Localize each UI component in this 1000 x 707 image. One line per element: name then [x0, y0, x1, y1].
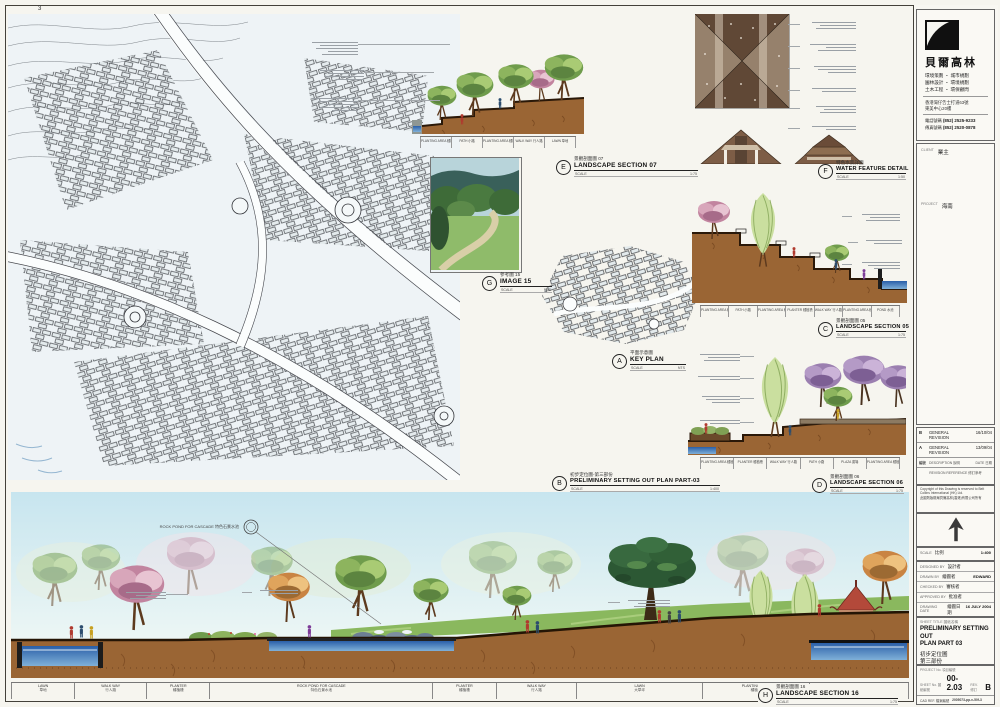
callout-image-15: G 參考圖 15 IMAGE 15 SCALENTS	[482, 272, 552, 293]
dim-label: PLANTING AREA 種植區	[842, 306, 870, 317]
scale-cn: 比例	[935, 550, 944, 556]
annotation-block	[800, 42, 856, 51]
section-07-drawing	[412, 22, 584, 134]
client-value: 業主	[938, 148, 949, 156]
annotation-block	[306, 68, 364, 80]
revision-footer: REVISION REFERENCE 修訂參考	[917, 468, 994, 475]
dim-segment: ROCK POND FOR CASCADE特色石景水池	[209, 683, 432, 699]
plaza-wall	[800, 419, 906, 424]
dim-label: PLANTING AREA 種植區	[700, 458, 733, 469]
company-name: 貝爾高林	[917, 54, 994, 70]
callout-section-07: E 景觀剖面圖 07 LANDSCAPE SECTION 07 SCALE1:7…	[556, 156, 698, 177]
section-06-dim-strip: PLANTING AREA 種植區 PLANTER 種植槽 WALK WAY 行…	[700, 457, 900, 469]
scale-value: 1:75	[898, 333, 905, 337]
scale-label: SCALE	[501, 288, 513, 292]
dim-label: PLANTER 種植槽	[785, 306, 813, 317]
page-marker: 3	[38, 6, 41, 12]
annotation-block	[852, 260, 900, 269]
key-plan-roundabout	[563, 297, 577, 311]
sheet-title-label: SHEET TITLE 圖紙名稱	[917, 618, 994, 626]
tel-value: (852) 2525-9233	[943, 118, 975, 123]
person	[499, 98, 502, 108]
scale-label: SCALE	[575, 172, 587, 176]
callout-letter: F	[818, 164, 833, 179]
callout-section-16: H 景觀剖面圖 16 LANDSCAPE SECTION 16 SCALE1:7…	[758, 684, 898, 705]
north-arrow-icon	[941, 516, 971, 544]
annotation-block	[800, 86, 856, 92]
scale-value: NTS	[678, 366, 685, 370]
sheet-title-panel: SHEET TITLE 圖紙名稱 PRELIMINARY SETTING OUT…	[916, 617, 995, 665]
dim-segment: PLANTER種植槽	[146, 683, 209, 699]
north-arrow-panel	[916, 513, 995, 547]
company-panel: 貝爾高林 環境策劃 ・ 城市規劃 園林設計 ・ 環境規劃 土木工程 ・ 環保顧問…	[916, 9, 995, 141]
callout-title-en: LANDSCAPE SECTION 16	[776, 690, 898, 699]
credit-row: CHECKED BY審核者	[917, 582, 994, 592]
copyright-en: Copyright of this Drawing is reserved to…	[917, 486, 994, 495]
credit-row: APPROVED BY批准者	[917, 593, 994, 603]
annotation-block	[118, 590, 166, 599]
pond-water	[688, 447, 716, 454]
scale-label: SCALE	[571, 487, 583, 491]
dim-segment: WALK WAY行人路	[496, 683, 577, 699]
copyright-note: Copyright of this Drawing is reserved to…	[916, 485, 995, 513]
rev-label: REV. 修訂	[970, 683, 981, 692]
section-05-drawing	[692, 193, 907, 303]
dim-label: POND 水池	[871, 306, 900, 317]
pond-wall	[878, 269, 882, 289]
water-feature-elevations	[697, 130, 867, 164]
revision-table: B GENERAL REVISION 16/10/04 A GENERAL RE…	[916, 427, 995, 485]
callout-setting-out-plan: B 初步定位圖-第三部份 PRELIMINARY SETTING OUT PLA…	[552, 472, 720, 492]
annotation-block	[620, 598, 670, 607]
scale-label: SCALE	[831, 489, 843, 493]
callout-letter: D	[812, 478, 827, 493]
company-service: 環境策劃 ・ 城市規劃	[917, 72, 994, 79]
dim-label: WALK WAY 行人路	[766, 458, 799, 469]
dim-label: WALK WAY 行人路	[513, 137, 544, 148]
scale-value: NTS	[544, 288, 551, 292]
revision-row: A GENERAL REVISION 13/09/04	[917, 443, 994, 458]
scale-value: 1:75	[690, 172, 697, 176]
section-05-dim-strip: PLANTING AREA 種植區 PATH 小路 PLANTING AREA …	[700, 305, 900, 317]
section-07-dim-strip: PLANTING AREA 種植區 PATH 小路 PLANTING AREA …	[420, 136, 576, 148]
credits-panel: DESIGNED BY設計者 DRAWN BY繪圖者EDWARD CHECKED…	[916, 561, 995, 617]
cad-ref-value: 2005073-pp-v-50f-3	[952, 698, 982, 703]
scale-value: 1:75	[896, 489, 903, 493]
credit-row: DESIGNED BY設計者	[917, 562, 994, 572]
sheet-title-cn: 初步定位圖	[917, 652, 994, 659]
credit-row: DRAWN BY繪圖者EDWARD	[917, 572, 994, 582]
callout-letter: A	[612, 354, 627, 369]
revision-row: B GENERAL REVISION 16/10/04	[917, 428, 994, 443]
project-no-label: PROJECT No. 項目編號	[920, 667, 955, 672]
planter-shrubs	[690, 426, 730, 441]
project-value: 海南	[942, 202, 953, 210]
image-15-photo	[430, 157, 522, 273]
client-project-panel: CLIENT業主 PROJECT海南	[916, 143, 995, 425]
annotation-block	[852, 212, 900, 221]
scale-value: 1:400	[710, 487, 719, 491]
callout-title-en: LANDSCAPE SECTION 07	[574, 162, 698, 171]
callout-section-05: C 景觀剖面圖 05 LANDSCAPE SECTION 05 SCALE1:7…	[818, 318, 906, 338]
rock-pond-note: ROCK POND FOR CASCADE 特色石景水池	[160, 523, 239, 529]
callout-title-en: KEY PLAN	[630, 356, 686, 365]
credit-row: DRAWING DATE繪圖日期16 JULY 2004	[917, 603, 994, 617]
annotation-block	[690, 394, 740, 403]
company-service: 土木工程 ・ 環保顧問	[917, 86, 994, 93]
sheet-no-label: SHEET No. 圖紙編號	[920, 682, 943, 692]
cad-ref-label: CAD REF. 檔案編號	[920, 698, 949, 703]
belt-collins-logo-icon	[925, 20, 959, 50]
scale-label: SCALE	[920, 551, 932, 555]
rev-value: B	[985, 683, 991, 692]
project-label: PROJECT	[921, 202, 938, 210]
annotation-block	[800, 64, 856, 73]
annotation-block	[690, 418, 740, 424]
person	[863, 269, 866, 279]
dim-label: PATH 小路	[728, 306, 756, 317]
annotation-block	[800, 20, 856, 29]
client-label: CLIENT	[921, 148, 934, 156]
callout-letter: G	[482, 276, 497, 291]
copyright-cn: 此圖則版權屬貝爾高林(香港)有限公司所有	[917, 495, 994, 500]
callout-title-en: LANDSCAPE SECTION 05	[836, 324, 906, 332]
dim-label: WALK WAY 行人路	[814, 306, 842, 317]
pond-water	[882, 281, 907, 289]
annotation-block	[300, 40, 358, 55]
annotation-block	[800, 124, 856, 130]
annotation-block	[858, 238, 902, 244]
dim-label: PLANTING AREA 種植區	[866, 458, 900, 469]
callout-title-en: WATER FEATURE DETAIL	[836, 166, 906, 174]
scale-value: 1:50	[898, 175, 905, 179]
water-channel	[413, 126, 421, 132]
dim-label: PLANTER 種植槽	[733, 458, 766, 469]
sheet-title-en: PLAN PART 03	[917, 641, 994, 649]
annotation-block	[252, 588, 298, 594]
water-feature-plan	[695, 14, 789, 108]
numbers-panel: PROJECT No. 項目編號 SHEET No. 圖紙編號 00-2.03 …	[916, 665, 995, 705]
person	[793, 247, 796, 257]
scale-value: 1:400	[981, 550, 991, 555]
revision-header: 編號 DESCRIPTION 說明 DATE 日期	[917, 458, 994, 468]
callout-section-06: D 景觀剖面圖 06 LANDSCAPE SECTION 06 SCALE1:7…	[812, 474, 904, 494]
fax-label: 傳真號碼	[925, 125, 942, 130]
annotation-block	[300, 96, 358, 111]
panorama-section-drawing: ROCK POND FOR CASCADE 特色石景水池	[11, 492, 909, 678]
callout-letter: H	[758, 688, 773, 703]
dim-label: PLAZA 廣場	[833, 458, 866, 469]
right-pool	[809, 640, 909, 660]
callout-water-feature: F 特色水景詳圖 WATER FEATURE DETAIL SCALE1:50	[818, 160, 906, 180]
callout-letter: C	[818, 322, 833, 337]
dim-segment: LAWN草地	[11, 683, 74, 699]
drawing-sheet: 3	[0, 0, 1000, 707]
center-trough	[267, 638, 456, 651]
key-plan-roundabout	[649, 319, 659, 329]
annotation-block	[800, 104, 856, 113]
dim-segment: PLANTER種植槽	[432, 683, 495, 699]
company-service: 園林設計 ・ 環境規劃	[917, 79, 994, 86]
scale-label: SCALE	[837, 175, 849, 179]
dim-label: PLANTING AREA 種植區	[482, 137, 513, 148]
dim-label: LAWN 草地	[544, 137, 576, 148]
scale-label: SCALE	[777, 700, 789, 704]
fax-value: (852) 2520-0878	[943, 125, 975, 130]
tel-label: 電話號碼	[925, 118, 942, 123]
annotation-block	[690, 374, 740, 380]
callout-letter: E	[556, 160, 571, 175]
callout-title-en: PRELIMINARY SETTING OUT PLAN PART-03	[570, 478, 720, 486]
dim-label: PLANTING AREA 種植區	[757, 306, 785, 317]
scale-label: SCALE	[631, 366, 643, 370]
scale-label: SCALE	[837, 333, 849, 337]
key-plan-drawing	[534, 244, 706, 350]
dim-label: PATH 小路	[800, 458, 833, 469]
scale-panel: SCALE 比例 1:400	[916, 547, 995, 561]
dim-segment: WALK WAY行人路	[74, 683, 146, 699]
dim-label: PATH 小路	[451, 137, 482, 148]
scale-value: 1:75	[890, 700, 897, 704]
annotation-block	[690, 352, 740, 361]
callout-letter: B	[552, 476, 567, 491]
dim-label: PLANTING AREA 種植區	[420, 137, 451, 148]
sheet-title-en: PRELIMINARY SETTING OUT	[917, 626, 994, 641]
dim-label: PLANTING AREA 種植區	[700, 306, 728, 317]
callout-title-en: LANDSCAPE SECTION 06	[830, 480, 904, 488]
company-address: 東美中心20樓	[917, 106, 994, 112]
callout-title-en: IMAGE 15	[500, 278, 552, 287]
title-block: 貝爾高林 環境策劃 ・ 城市規劃 園林設計 ・ 環境規劃 土木工程 ・ 環保顧問…	[913, 5, 998, 702]
callout-key-plan: A 平面示意圖 KEY PLAN SCALENTS	[612, 350, 686, 371]
dim-segment: LAWN大草坪	[576, 683, 701, 699]
site-plan-drawing	[8, 14, 460, 480]
sheet-number: 00-2.03	[947, 674, 967, 692]
